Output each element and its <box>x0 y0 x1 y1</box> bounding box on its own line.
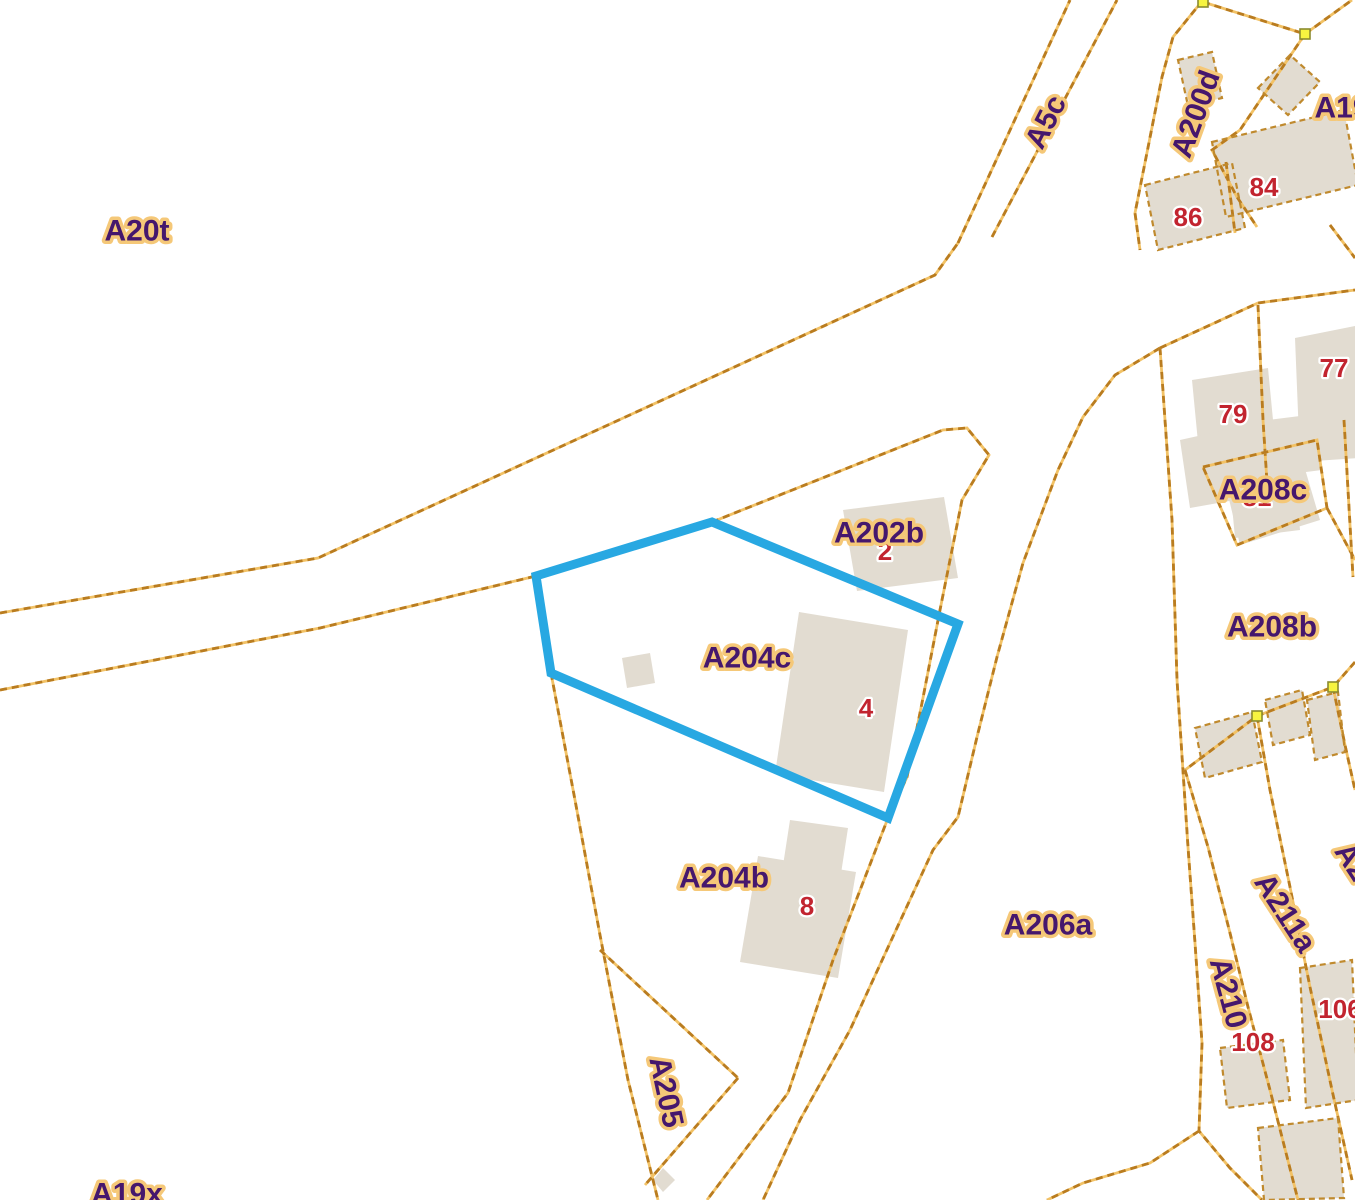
building-84 <box>1212 110 1355 217</box>
parcel-label-a206a[interactable]: A206a <box>1004 909 1093 942</box>
cadastral-map-canvas[interactable]: 8684797781248108106A20tA5cA200dA19A202bA… <box>0 0 1355 1200</box>
parcel-label-a208c[interactable]: A208c <box>1219 474 1307 507</box>
parcel-label-a208b[interactable]: A208b <box>1227 611 1317 644</box>
parcel-label-a205[interactable]: A205 <box>642 1053 689 1130</box>
boundary-node-line-left <box>1203 2 1305 34</box>
strip-building-t1 <box>1195 712 1262 778</box>
house-number-84: 84 <box>1250 172 1279 202</box>
parcel-label-a211a[interactable]: A211a <box>1248 868 1323 959</box>
parcel-label-a204c[interactable]: A204c <box>703 642 791 675</box>
house-number-106: 106 <box>1318 994 1355 1024</box>
parcel-label-a20t[interactable]: A20t <box>104 215 169 248</box>
boundary-a205-west-base <box>551 673 658 1200</box>
a204c-building <box>775 612 908 792</box>
parcel-label-a202b[interactable]: A202b <box>834 517 924 550</box>
strip-building-b3 <box>1258 1118 1344 1200</box>
house-number-77: 77 <box>1320 353 1349 383</box>
boundary-road-north-edge-base <box>0 243 958 613</box>
parcel-label-a19x[interactable]: A19x <box>91 1178 163 1200</box>
house-number-4: 4 <box>859 693 874 723</box>
a204c-shed <box>622 653 655 688</box>
house-number-86: 86 <box>1174 202 1203 232</box>
boundary-road-north-edge <box>0 243 958 613</box>
junction-node-0 <box>1198 0 1208 7</box>
junction-node-1 <box>1300 29 1310 39</box>
a19-building <box>1258 55 1320 115</box>
house-number-108: 108 <box>1231 1027 1274 1057</box>
parcel-label-a210[interactable]: A210 <box>1203 954 1253 1032</box>
junction-node-3 <box>1252 711 1262 721</box>
boundary-corner-branch-base <box>1047 1131 1199 1200</box>
map-viewport[interactable]: 8684797781248108106A20tA5cA200dA19A202bA… <box>0 0 1355 1200</box>
parcel-label-a204b[interactable]: A204b <box>679 862 769 895</box>
house-number-79: 79 <box>1219 399 1248 429</box>
junction-node-2 <box>1328 682 1338 692</box>
parcel-label-a19[interactable]: A19 <box>1314 92 1355 125</box>
parcel-label-a2[interactable]: A2 <box>1328 837 1355 887</box>
house-number-8: 8 <box>800 891 814 921</box>
